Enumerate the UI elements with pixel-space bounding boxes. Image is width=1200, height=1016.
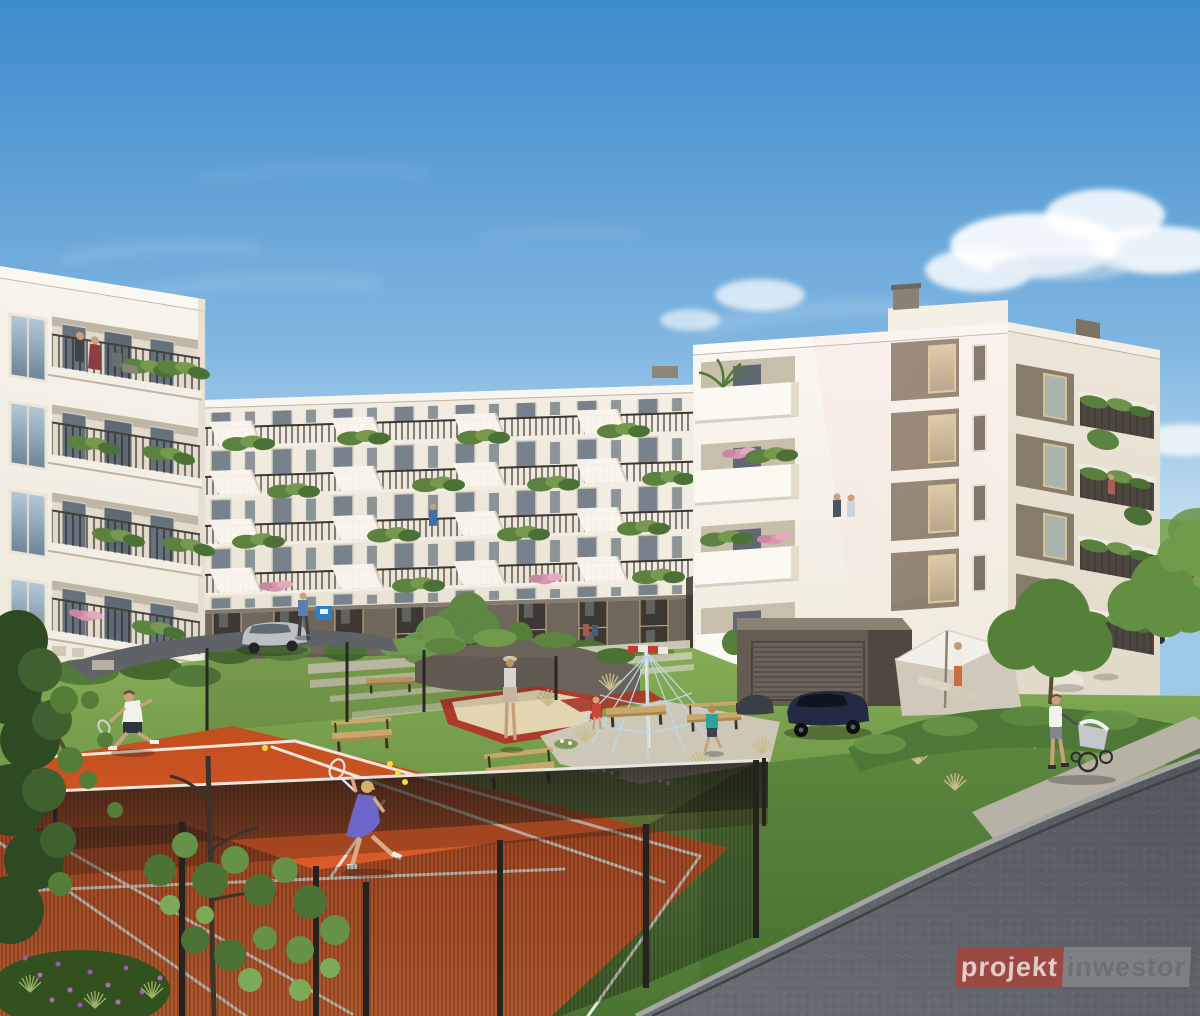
play-sign-glyph (320, 609, 328, 614)
balcony-resident (429, 504, 437, 526)
rooftop-vent (652, 366, 678, 378)
terrace-table (92, 660, 114, 670)
terrace-furniture (72, 648, 84, 657)
car-navy (784, 691, 872, 740)
rendering-canvas: projektinwestor (0, 0, 1200, 1016)
scene-svg (0, 0, 1200, 1016)
